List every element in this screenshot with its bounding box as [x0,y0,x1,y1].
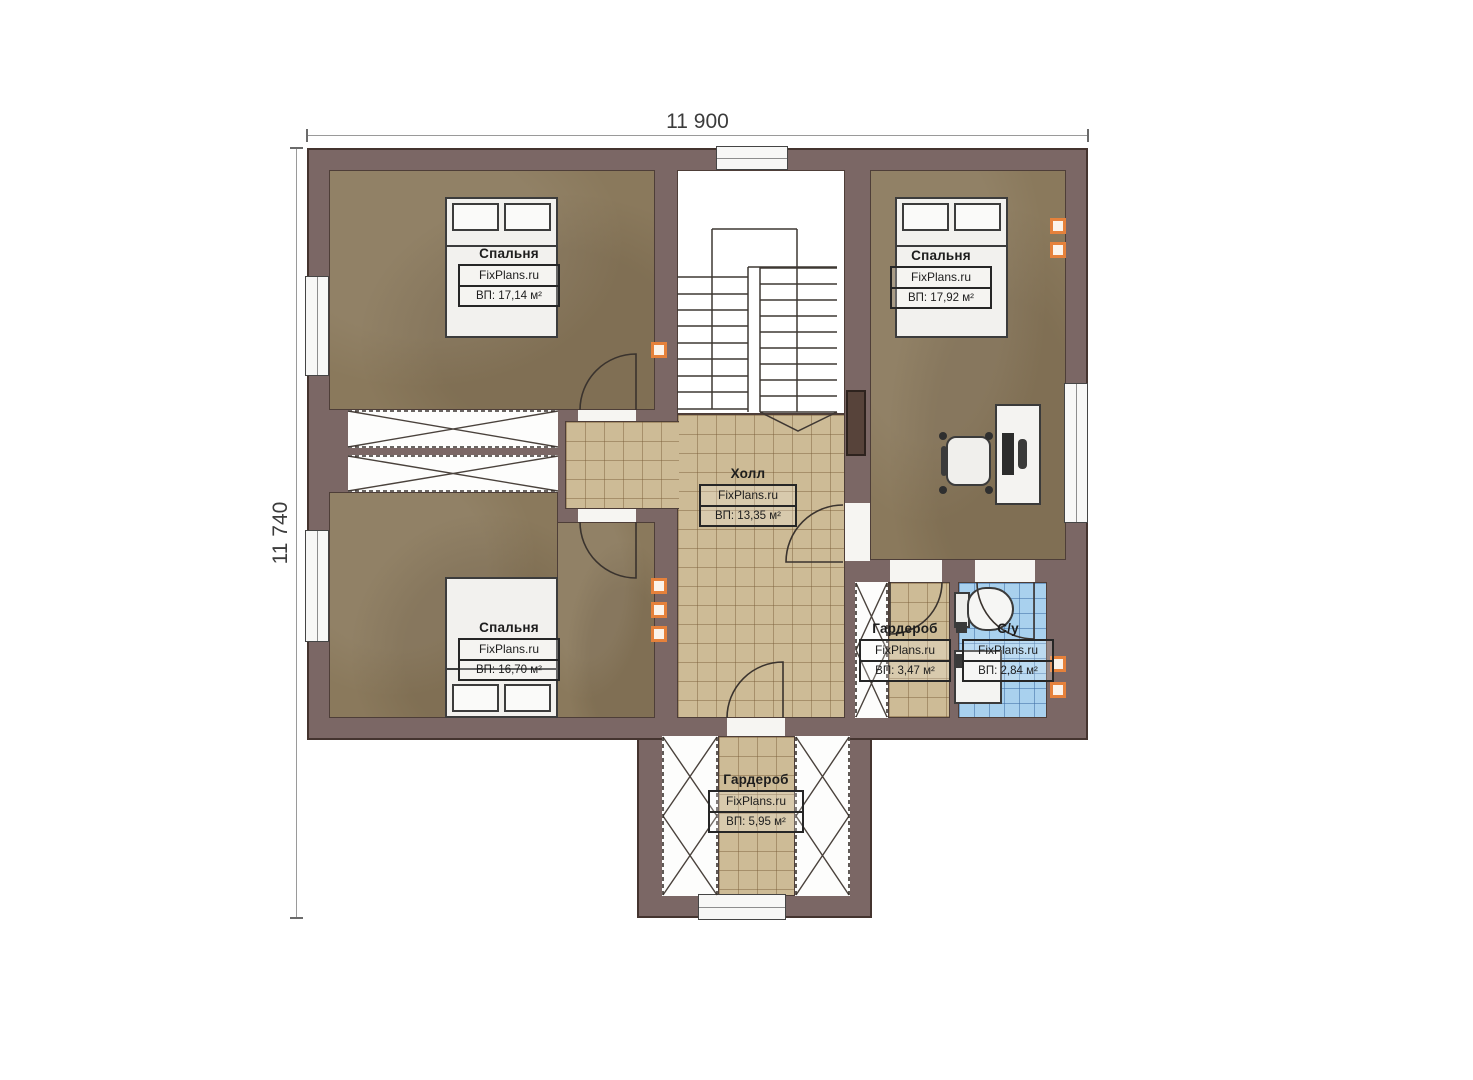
vent-icon [1050,218,1066,234]
room-area: ВП: 3,47 м² [861,660,949,680]
room-label-bedroom-top-right: Спальня FixPlans.ru ВП: 17,92 м² [883,248,999,309]
room-label-wardrobe-bottom: Гардероб FixPlans.ru ВП: 5,95 м² [700,772,812,833]
pillow [954,203,1001,231]
room-hall-floor [677,414,845,718]
room-name: Холл [690,466,806,481]
pillow [504,203,551,231]
room-name: С/у [958,621,1058,636]
pillow [452,684,499,712]
vent-icon [651,578,667,594]
pillow [504,684,551,712]
door-opening-wardrobe-mid [890,560,942,582]
room-label-wardrobe-mid: Гардероб FixPlans.ru ВП: 3,47 м² [855,621,955,682]
window-bottom [698,894,786,920]
window-left-upper [305,276,329,376]
watermark: FixPlans.ru [964,641,1052,660]
dimension-height-label: 11 740 [269,493,293,573]
watermark: FixPlans.ru [460,266,558,285]
room-name: Спальня [883,248,999,263]
dimension-tick [306,129,308,142]
dimension-tick [290,917,303,919]
window-right [1064,383,1088,523]
closet-strip-lower [348,455,558,492]
room-label-bedroom-top-left: Спальня FixPlans.ru ВП: 17,14 м² [445,246,573,307]
watermark: FixPlans.ru [701,486,795,505]
watermark: FixPlans.ru [861,641,949,660]
computer-icon [1018,439,1027,469]
window-top [716,146,788,170]
dimension-tick [290,147,303,149]
office-chair [946,436,991,486]
desk [995,404,1041,505]
vent-icon [651,342,667,358]
pillow [452,203,499,231]
room-name: Гардероб [700,772,812,787]
door-opening-bedroom-top-left [578,410,636,421]
pillow [902,203,949,231]
window-left-lower [305,530,329,642]
watermark: FixPlans.ru [892,268,990,287]
closet-strip-upper [348,410,558,448]
room-area: ВП: 16,70 м² [460,659,558,679]
watermark: FixPlans.ru [460,640,558,659]
door-opening-wardrobe-bottom [727,718,785,736]
vent-icon [651,602,667,618]
dimension-width-line [307,135,1088,136]
room-name: Гардероб [855,621,955,636]
floor-plan-canvas: 11 900 11 740 [0,0,1473,1080]
dimension-height-line [296,148,297,918]
room-area: ВП: 17,14 м² [460,285,558,305]
room-area: ВП: 13,35 м² [701,505,795,525]
door-opening-bedroom-top-right [845,503,870,561]
vent-icon [651,626,667,642]
hall-corridor-floor [565,421,679,509]
door-opening-bedroom-bottom-left [578,509,636,522]
dimension-tick [1087,129,1089,142]
vent-icon [1050,682,1066,698]
dimension-width-label: 11 900 [307,110,1088,134]
room-area: ВП: 2,84 м² [964,660,1052,680]
room-name: Спальня [445,246,573,261]
door-opening-bathroom [975,560,1035,582]
room-area: ВП: 17,92 м² [892,287,990,307]
room-label-bedroom-bottom-left: Спальня FixPlans.ru ВП: 16,70 м² [445,620,573,681]
blanket-fold [897,245,1006,247]
room-area: ВП: 5,95 м² [710,811,802,831]
stairwell-floor [677,170,845,414]
room-label-bathroom: С/у FixPlans.ru ВП: 2,84 м² [958,621,1058,682]
room-name: Спальня [445,620,573,635]
vent-icon [1050,242,1066,258]
room-label-hall: Холл FixPlans.ru ВП: 13,35 м² [690,466,806,527]
watermark: FixPlans.ru [710,792,802,811]
door-leaf-bedroom-top-right [846,390,866,456]
monitor-icon [1002,433,1014,475]
